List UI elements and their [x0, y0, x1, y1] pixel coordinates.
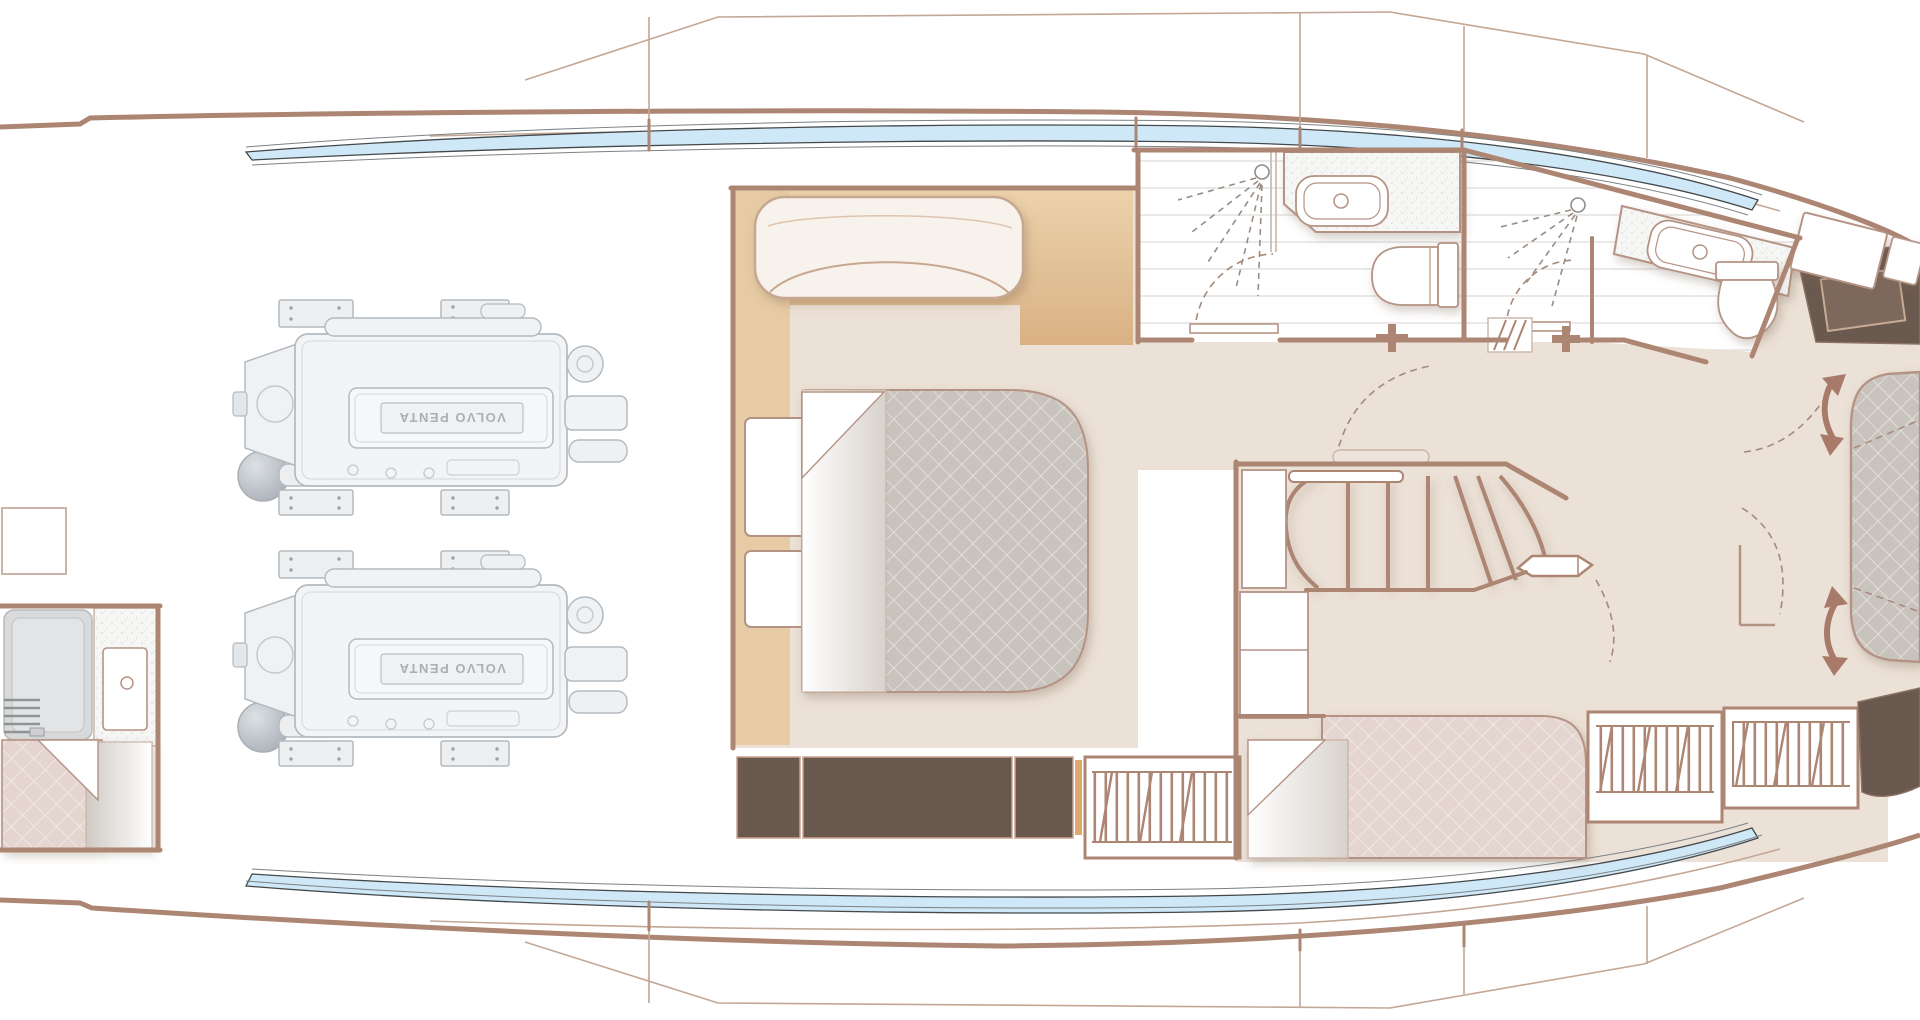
- vanity-1: [1284, 152, 1460, 232]
- drawer-trim: [1075, 760, 1082, 835]
- guest-cabinet-upper: [1242, 470, 1286, 588]
- hanging-locker-guest-2: [1724, 708, 1858, 808]
- door-leaf-bathroom-1: [1190, 324, 1278, 333]
- crew-cabin: [2, 608, 158, 850]
- guest-cabinet-lower: [1240, 592, 1308, 718]
- master-bed: [802, 390, 1088, 692]
- hanging-locker-forward: [1085, 757, 1240, 858]
- guest-mattress: [1322, 716, 1586, 858]
- floor-plan-canvas: VOLVO PENTA: [0, 0, 1920, 1020]
- yacht-lower-deck-plan: VOLVO PENTA: [0, 0, 1920, 1020]
- toilet-1: [1372, 243, 1458, 307]
- engine-1: [233, 300, 627, 515]
- cabin-sofa: [755, 197, 1023, 298]
- bow-seat-small: [1883, 236, 1920, 285]
- crew-berth: [2, 740, 152, 850]
- cabinet-dark-aft: [1858, 688, 1920, 796]
- hanging-locker-guest-1: [1588, 712, 1722, 822]
- luggage-rack: [1488, 318, 1532, 352]
- stair-newel: [1518, 556, 1592, 576]
- engine-2: [233, 551, 627, 766]
- bow-bed: [1851, 372, 1920, 662]
- drawer-bank: [737, 757, 1082, 838]
- bow-mattress: [1851, 372, 1920, 662]
- stern-platform: [2, 508, 66, 574]
- stair-handrail: [1289, 471, 1403, 482]
